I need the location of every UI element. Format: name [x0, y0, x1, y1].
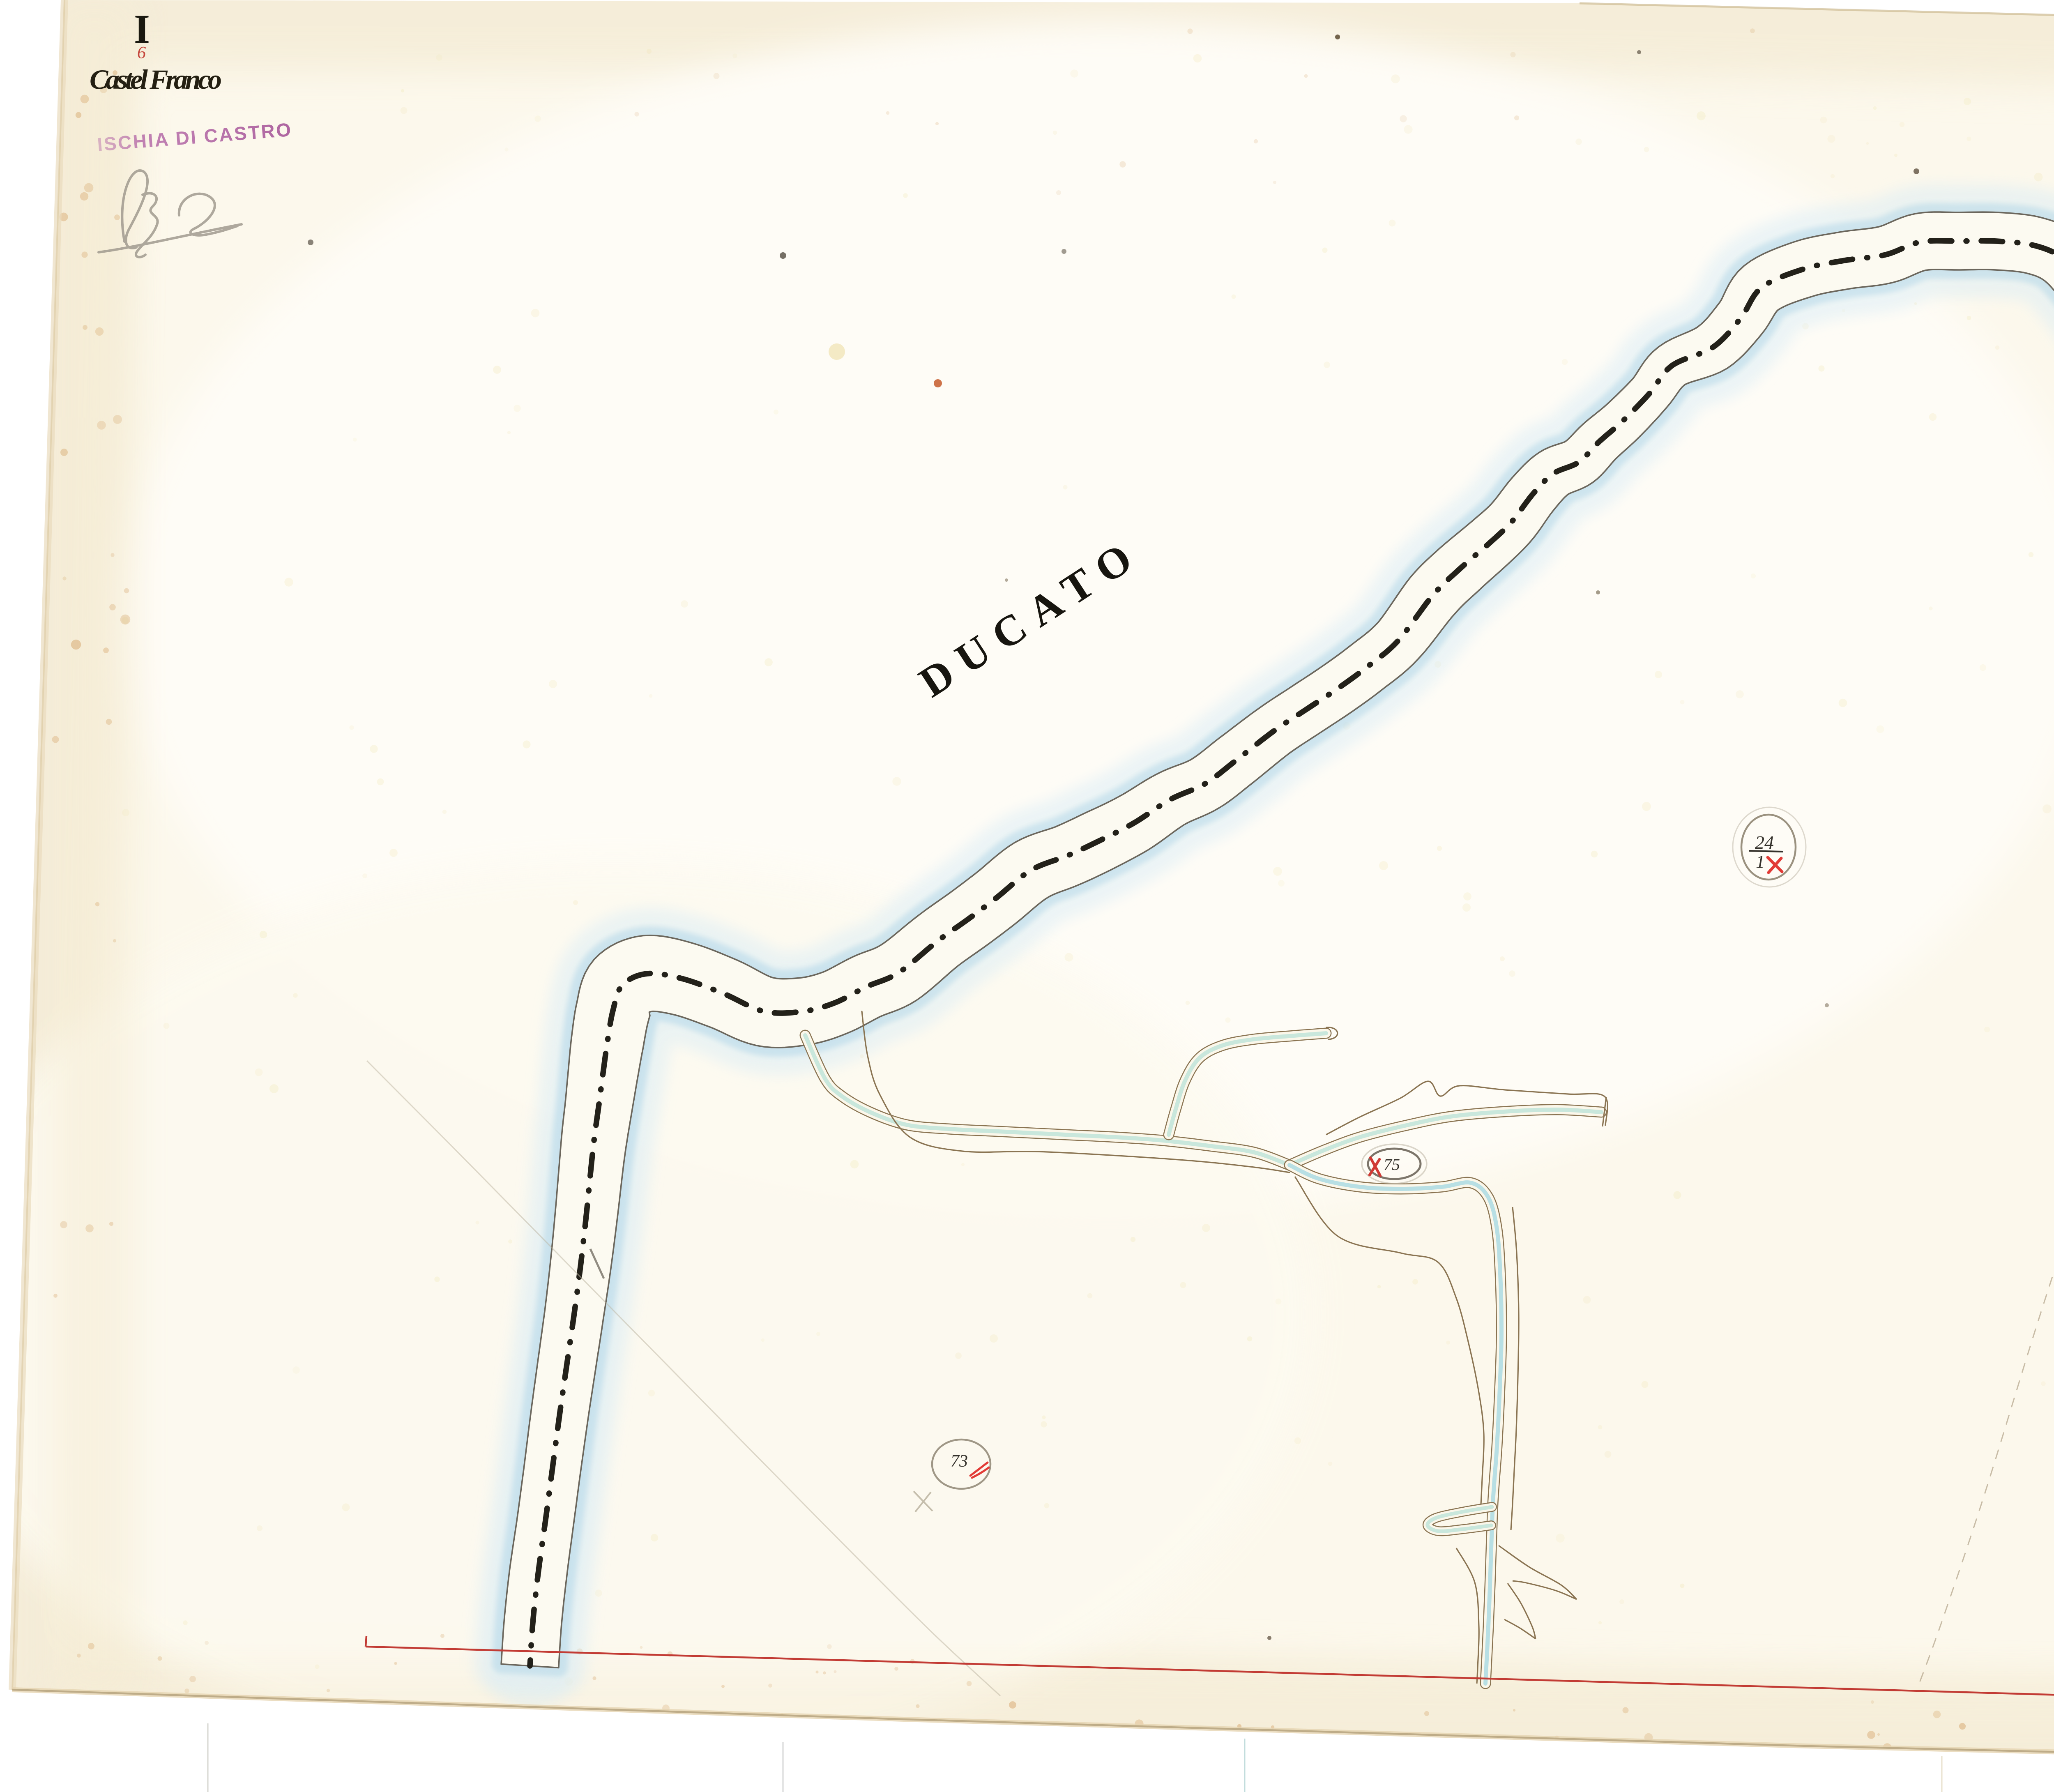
svg-text:73: 73	[951, 1452, 968, 1471]
svg-text:Castel Franco: Castel Franco	[90, 64, 222, 95]
svg-text:24: 24	[1755, 832, 1774, 853]
svg-text:6: 6	[137, 44, 146, 62]
svg-text:1: 1	[1756, 852, 1765, 872]
svg-text:75: 75	[1384, 1155, 1400, 1174]
